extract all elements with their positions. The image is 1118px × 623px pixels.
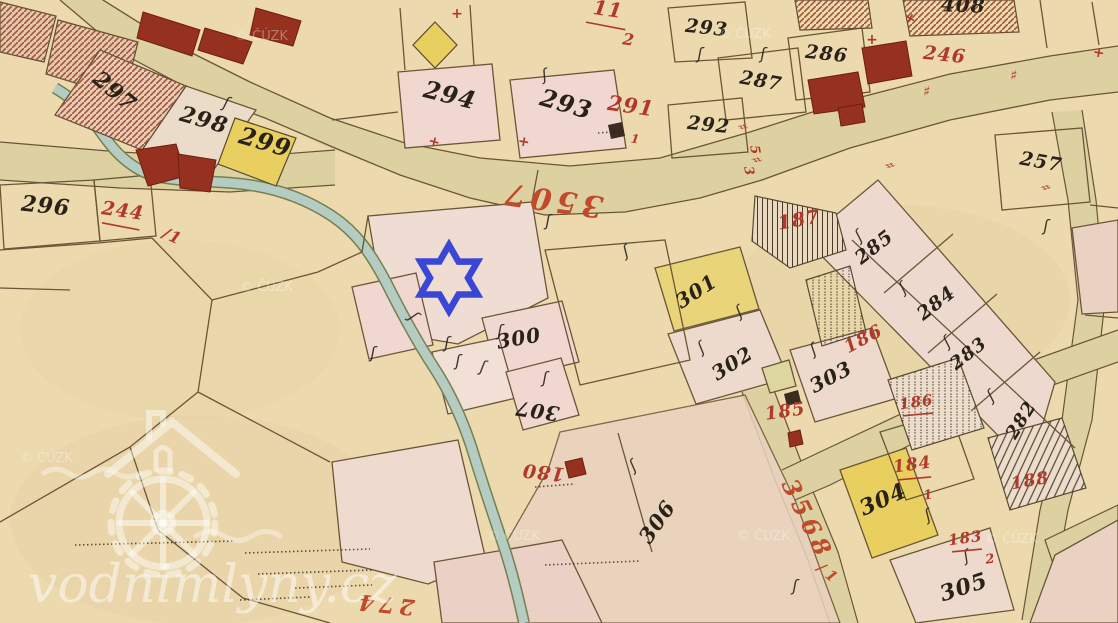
red-parcel-number-1: 1 xyxy=(630,131,641,146)
copyright-watermark: © ČÚZK xyxy=(718,26,771,42)
boundary-mark: + xyxy=(451,6,463,22)
parcel-number-296: 296 xyxy=(19,190,71,221)
parcel-number-286: 286 xyxy=(803,41,849,67)
copyright-watermark: © ČÚZK xyxy=(737,528,790,544)
copyright-watermark: © ČÚZK xyxy=(20,450,73,466)
red-parcel-number-1: 1 xyxy=(922,487,934,503)
red-parcel-number-180: 180 xyxy=(521,459,566,485)
copyright-watermark: © ČÚZK xyxy=(985,531,1038,547)
copyright-watermark: © ČÚZK xyxy=(235,28,288,44)
parcel-number-408: 408 xyxy=(940,0,986,18)
cadastral-map-viewport[interactable]: ʃʃʃʃʃʃʃʃʃʃʃʃʃʃʃʃʃʃʃʃʃʃʃʃʃ ++♯♯♯♯♯♯++++ 2… xyxy=(0,0,1118,623)
boundary-mark: + xyxy=(866,32,878,48)
red-parcel-number-2: 2 xyxy=(620,29,636,50)
red-parcel-number-246: 246 xyxy=(921,42,967,68)
watermark-site-text: vodnimlyny.cz xyxy=(28,555,397,615)
copyright-watermark: © ČÚZK xyxy=(487,528,540,544)
red-parcel-number-2: 2 xyxy=(984,551,997,567)
parcel-number-292: 292 xyxy=(685,112,731,138)
copyright-watermark: © ČÚZK xyxy=(240,279,293,295)
cadastral-map[interactable]: ʃʃʃʃʃʃʃʃʃʃʃʃʃʃʃʃʃʃʃʃʃʃʃʃʃ ++♯♯♯♯♯♯++++ 2… xyxy=(0,0,1118,623)
